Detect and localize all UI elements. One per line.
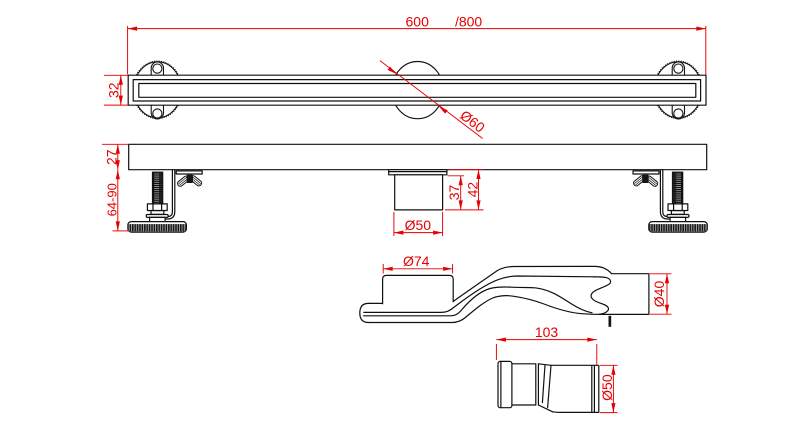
svg-text:Ø40: Ø40 xyxy=(651,281,667,308)
svg-text:600: 600 xyxy=(406,14,430,30)
svg-text:Ø74: Ø74 xyxy=(403,253,430,269)
svg-text:64-90: 64-90 xyxy=(104,183,119,216)
svg-text:Ø50: Ø50 xyxy=(405,217,432,233)
svg-text:42: 42 xyxy=(465,182,481,198)
svg-text:103: 103 xyxy=(535,324,559,340)
svg-text:32: 32 xyxy=(105,82,121,98)
svg-text:/800: /800 xyxy=(455,14,482,30)
svg-text:Ø50: Ø50 xyxy=(599,374,615,401)
svg-text:37: 37 xyxy=(446,185,462,201)
svg-text:27: 27 xyxy=(103,149,119,165)
